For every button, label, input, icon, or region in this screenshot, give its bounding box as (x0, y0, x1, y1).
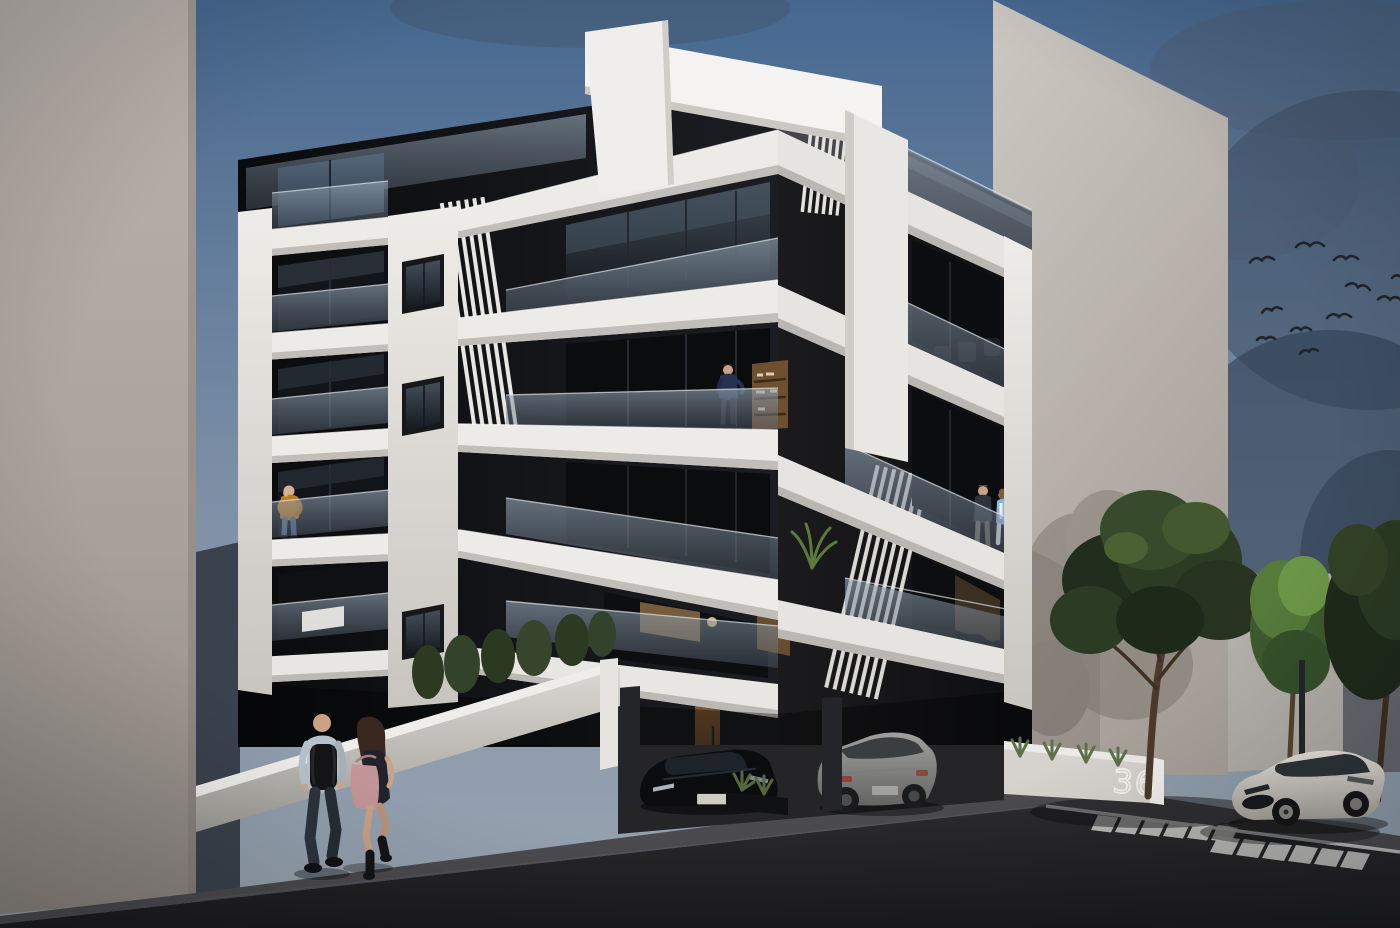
render-canvas: 36 (0, 0, 1400, 928)
vignette-overlay (0, 0, 1400, 928)
architectural-render-scene: 36 (0, 0, 1400, 928)
